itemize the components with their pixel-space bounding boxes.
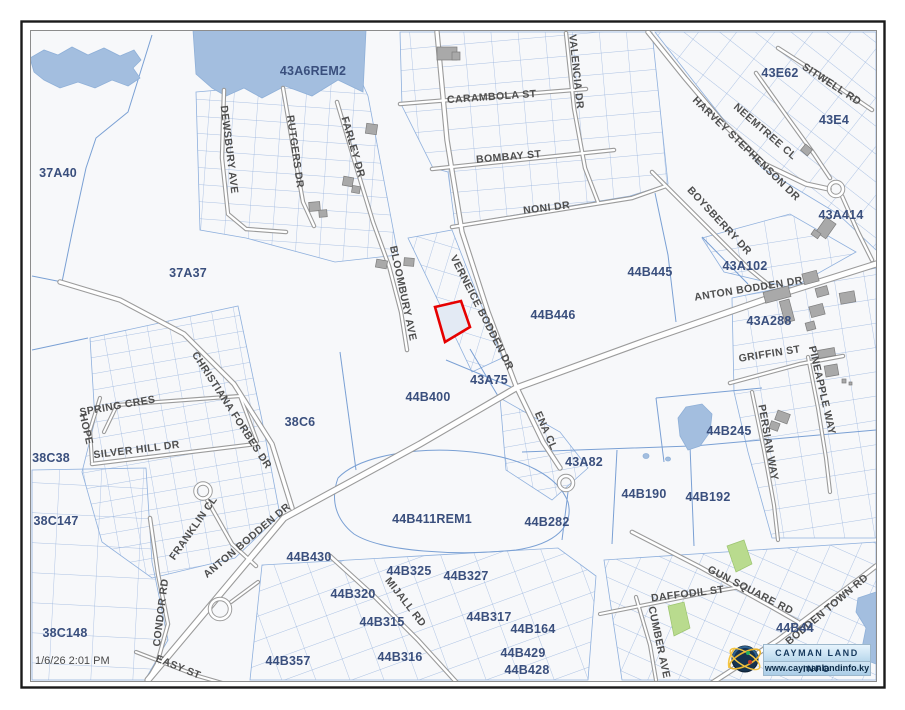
- parcel-label: 44B282: [525, 515, 570, 529]
- parcel-label: 43A414: [819, 208, 864, 222]
- parcel-label: 44B411REM1: [392, 512, 472, 526]
- parcel-label: 38C38: [32, 451, 70, 465]
- building-footprint: [342, 176, 353, 187]
- parcel-label: 44B245: [707, 424, 752, 438]
- parcel-label: 44B429: [501, 646, 546, 660]
- parcel-label: 37A37: [169, 266, 207, 280]
- pond: [643, 454, 649, 459]
- parcel-label: 44B320: [331, 587, 376, 601]
- subdivision-block: [32, 468, 168, 680]
- building-footprint: [375, 259, 387, 269]
- map-window: CARAMBOLA STBOMBAY STNONI DRVALENCIA DRD…: [0, 0, 905, 710]
- parcel-label: 43A82: [565, 455, 603, 469]
- cadastral-map-canvas[interactable]: CARAMBOLA STBOMBAY STNONI DRVALENCIA DRD…: [0, 0, 905, 710]
- parcel-label: 38C6: [285, 415, 316, 429]
- parcel-label: 43A288: [747, 314, 792, 328]
- parcel-label: 44B446: [531, 308, 576, 322]
- pond: [666, 457, 671, 461]
- parcel-label: 44B316: [378, 650, 423, 664]
- logo-url[interactable]: www.caymanlandinfo.ky: [763, 661, 871, 676]
- parcel-label: 37A40: [39, 166, 77, 180]
- building-footprint: [365, 123, 377, 134]
- parcel-label: 43A102: [723, 259, 768, 273]
- parcel-label: 44B357: [266, 654, 311, 668]
- parcel-label: 43A6REM2: [280, 64, 346, 78]
- parcel-label: 44B164: [511, 622, 556, 636]
- building-footprint: [309, 202, 321, 212]
- logo-title: CAYMAN LAND INFO: [763, 644, 871, 661]
- parcel-label: 44B44: [776, 621, 814, 635]
- building-footprint: [351, 185, 360, 193]
- parcel-label: 43A75: [470, 373, 508, 387]
- parcel-label: 44B315: [360, 615, 405, 629]
- building-footprint: [849, 382, 852, 385]
- parcel-label: 44B192: [686, 490, 731, 504]
- parcel-label: 44B400: [406, 390, 451, 404]
- parcel-label: 44B430: [287, 550, 332, 564]
- parcel-label: 44B325: [387, 564, 432, 578]
- parcel-label: 38C148: [43, 626, 88, 640]
- parcel-label: 38C147: [34, 514, 79, 528]
- building-footprint: [842, 379, 846, 383]
- building-footprint: [839, 291, 856, 304]
- building-footprint: [452, 52, 460, 60]
- cayman-land-info-logo[interactable]: CAYMAN LAND INFO www.caymanlandinfo.ky: [725, 638, 875, 682]
- parcel-label: 43E4: [819, 113, 849, 127]
- building-footprint: [319, 210, 328, 218]
- globe-icon: [725, 638, 765, 680]
- building-footprint: [824, 364, 839, 377]
- parcel-label: 44B190: [622, 487, 667, 501]
- parcel-label: 44B327: [444, 569, 489, 583]
- parcel-label: 43E62: [761, 66, 798, 80]
- building-footprint: [404, 258, 415, 267]
- parcel-label: 44B317: [467, 610, 512, 624]
- parcel-label: 44B445: [628, 265, 673, 279]
- timestamp: 1/6/26 2:01 PM: [35, 655, 110, 667]
- parcel-label: 44B428: [505, 663, 550, 677]
